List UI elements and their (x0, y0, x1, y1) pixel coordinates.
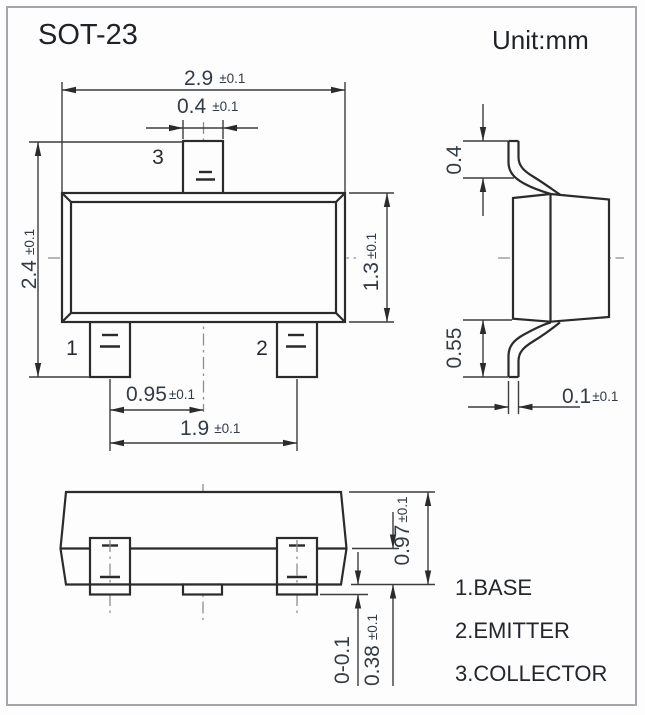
side-top-lead (509, 141, 561, 195)
dim-lead-thickness-tol: ±0.1 (592, 389, 618, 404)
dim-lead-pitch-tol: ±0.1 (169, 387, 195, 402)
dim-body-depth-tol: ±0.1 (364, 233, 379, 259)
pin-3-foot (183, 585, 222, 595)
dim-lead-span-tol: ±0.1 (214, 421, 240, 436)
lead-inner-edge (519, 322, 561, 377)
pin-2-lead (277, 322, 317, 377)
datasheet-page: SOT-23 Unit:mm 3 1 2 (0, 0, 645, 715)
dim-tab-lead-width-text: 0.4±0.1 (177, 95, 238, 118)
arrowhead (355, 571, 361, 585)
arrowhead (384, 308, 390, 322)
arrowhead (480, 178, 486, 192)
dim-lead-height-tol: ±0.1 (365, 614, 380, 640)
package-outline-drawing: SOT-23 Unit:mm 3 1 2 (0, 0, 645, 715)
dim-tab-lead-width-tol: ±0.1 (212, 99, 238, 114)
arrowhead (223, 125, 237, 131)
arrowhead (390, 585, 396, 599)
side-body-outline (513, 194, 609, 322)
dim-profile-height-value: 0.97 (391, 525, 414, 566)
arrowhead (384, 193, 390, 207)
dim-lead-height: 0.38±0.1 (352, 512, 399, 686)
arrowhead (283, 440, 297, 446)
arrowhead (425, 571, 431, 585)
dim-lead-span-text: 1.9±0.1 (180, 417, 240, 440)
dim-lead-bottom-length: 0.55 (443, 320, 512, 377)
arrowhead (519, 404, 533, 410)
dim-tab-lead-width: 0.4±0.1 (146, 95, 258, 139)
dim-lead-span-value: 1.9 (180, 417, 209, 440)
lead-inner-edge (519, 141, 561, 195)
body-outline (62, 193, 345, 322)
dim-body-depth-value: 1.3 (360, 262, 383, 291)
side-bottom-lead (509, 322, 561, 377)
dim-lead-top-length: 0.4 (443, 104, 514, 216)
arrowhead (480, 320, 486, 334)
front-view (61, 484, 347, 620)
dim-body-width-tol: ±0.1 (219, 71, 245, 86)
dim-standoff-value: 0-0.1 (331, 636, 354, 684)
dim-lead-top-length-text: 0.4 (443, 145, 466, 175)
arrowhead (35, 142, 41, 156)
pin-1-number: 1 (66, 337, 78, 360)
arrowhead (480, 127, 486, 141)
dim-profile-height-tol: ±0.1 (395, 496, 410, 522)
dim-tab-lead-width-value: 0.4 (177, 95, 207, 118)
arrowhead (495, 404, 509, 410)
lead-outer-edge (509, 141, 552, 194)
pin-3-number: 3 (152, 146, 164, 169)
dim-lead-thickness-value: 0.1 (562, 385, 591, 408)
side-view (498, 141, 624, 377)
dim-lead-thickness-text: 0.1±0.1 (562, 385, 618, 408)
pin-function-base: 1.BASE (455, 575, 532, 600)
dim-body-width-value: 2.9 (184, 67, 213, 90)
pin-2-number: 2 (256, 337, 268, 360)
top-view: 3 1 2 (48, 122, 356, 412)
front-pin-2 (277, 538, 317, 595)
dim-lead-pitch: 0.95±0.1 (110, 379, 204, 451)
pin-1-lead (90, 322, 130, 377)
page-title: SOT-23 (38, 19, 138, 51)
dim-lead-thickness: 0.1±0.1 (468, 381, 618, 414)
arrowhead (62, 87, 76, 93)
front-pin-1 (90, 538, 130, 595)
lead-outer-edge (509, 322, 552, 377)
arrowhead (35, 363, 41, 377)
unit-label: Unit:mm (492, 25, 589, 55)
arrowhead (355, 595, 361, 609)
dim-overall-depth-tol: ±0.1 (22, 229, 37, 255)
dim-body-width-text: 2.9±0.1 (184, 67, 245, 90)
arrowhead (169, 125, 183, 131)
pin-function-emitter: 2.EMITTER (455, 618, 570, 643)
arrowhead (110, 407, 124, 413)
dim-body-depth-text: 1.3±0.1 (360, 233, 383, 291)
dim-lead-pitch-value: 0.95 (126, 383, 167, 406)
pin-2-foot (277, 585, 317, 595)
dim-lead-top-length-value: 0.4 (443, 145, 466, 175)
dim-lead-height-value: 0.38 (361, 645, 384, 686)
arrowhead (480, 363, 486, 377)
arrowhead (425, 492, 431, 506)
pin-function-list: 1.BASE 2.EMITTER 3.COLLECTOR (455, 575, 607, 686)
dim-standoff-text: 0-0.1 (331, 636, 354, 684)
dim-lead-pitch-text: 0.95±0.1 (126, 383, 195, 406)
dim-overall-depth-value: 2.4 (18, 260, 41, 290)
dim-lead-height-text: 0.38±0.1 (361, 614, 384, 686)
dim-lead-bottom-length-value: 0.55 (443, 328, 466, 369)
dim-lead-bottom-length-text: 0.55 (443, 328, 466, 369)
arrowhead (331, 87, 345, 93)
pin-3-lead (183, 141, 223, 194)
arrowhead (190, 407, 204, 413)
arrowhead (110, 440, 124, 446)
pin-1-foot (90, 585, 130, 595)
pin-function-collector: 3.COLLECTOR (455, 661, 607, 686)
dim-profile-height-text: 0.97±0.1 (391, 496, 414, 565)
